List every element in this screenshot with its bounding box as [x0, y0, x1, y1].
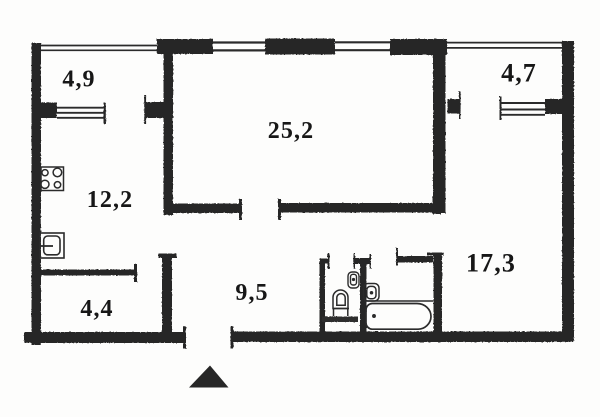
svg-text:17,3: 17,3 [466, 249, 516, 278]
svg-text:9,5: 9,5 [235, 280, 268, 306]
svg-text:4,7: 4,7 [501, 59, 537, 88]
svg-text:4,9: 4,9 [62, 67, 95, 93]
svg-text:25,2: 25,2 [268, 118, 314, 144]
svg-text:12,2: 12,2 [87, 187, 133, 213]
svg-text:4,4: 4,4 [80, 296, 113, 322]
